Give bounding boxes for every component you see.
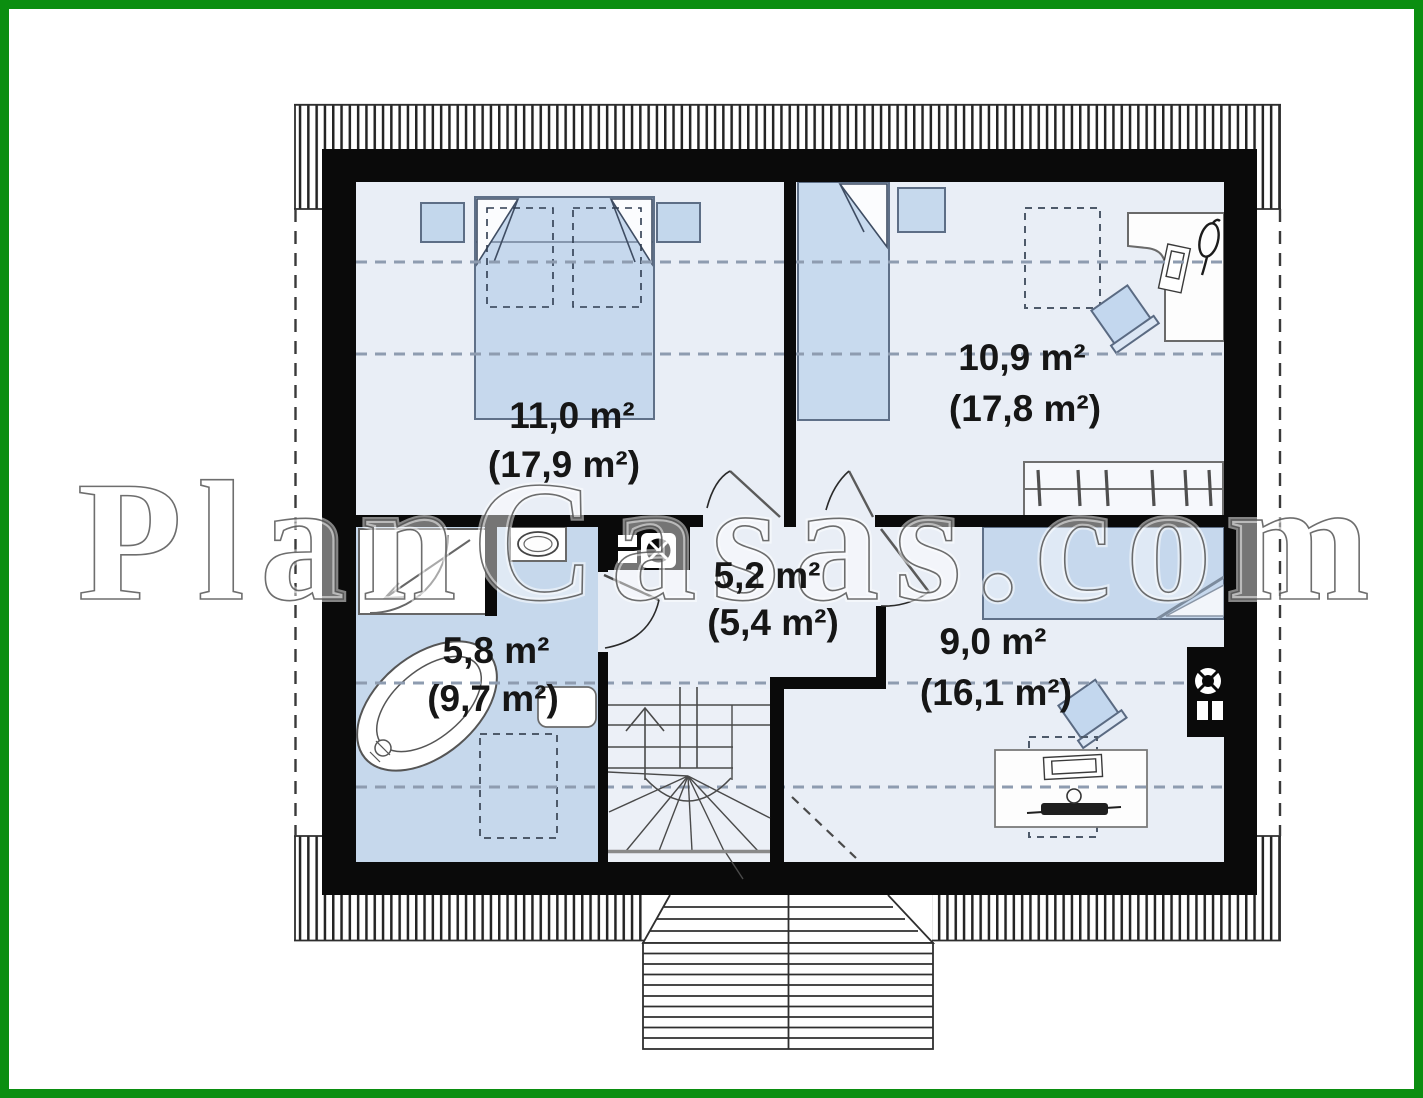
svg-text:5,2 m²: 5,2 m² <box>714 555 821 596</box>
svg-text:5,8 m²: 5,8 m² <box>443 630 550 671</box>
svg-text:9,0 m²: 9,0 m² <box>940 621 1047 662</box>
svg-text:(17,9 m²): (17,9 m²) <box>488 444 640 485</box>
svg-text:(16,1 m²): (16,1 m²) <box>920 672 1072 713</box>
svg-text:10,9 m²: 10,9 m² <box>958 337 1086 378</box>
svg-text:(17,8 m²): (17,8 m²) <box>949 388 1101 429</box>
svg-text:(5,4 m²): (5,4 m²) <box>707 602 839 643</box>
svg-text:11,0 m²: 11,0 m² <box>509 395 634 436</box>
svg-text:(9,7 m²): (9,7 m²) <box>427 678 559 719</box>
